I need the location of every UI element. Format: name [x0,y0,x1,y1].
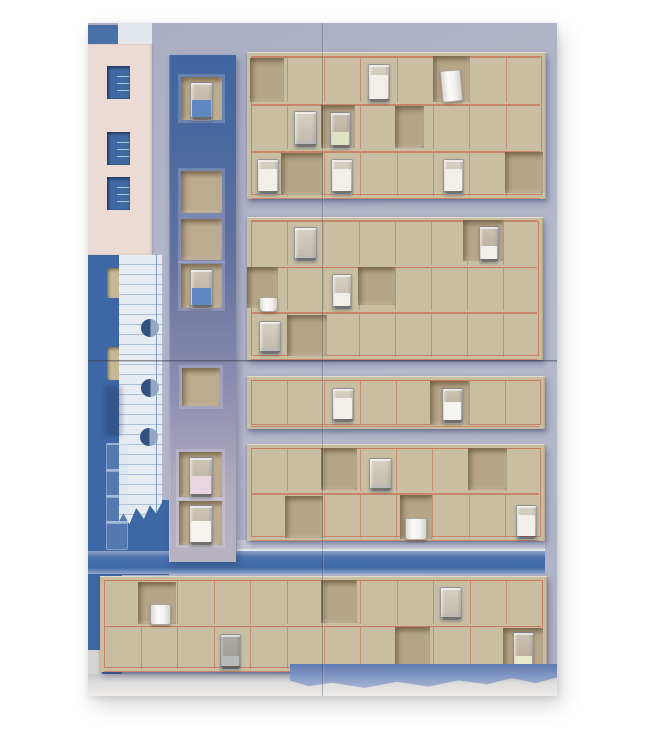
liquid [445,169,462,191]
column-niche [181,171,222,213]
grid-line [360,153,361,196]
grid-line [505,495,506,538]
grid-line [469,153,470,196]
grid-line [396,495,397,538]
cardboard-panel-3 [247,376,545,429]
glass-water [440,587,462,621]
glass-rim [444,160,463,162]
glass-base [191,305,212,308]
grid-line [250,581,251,624]
grid-line [431,221,432,265]
grid-line [324,153,325,196]
panel-niche [287,315,327,356]
glass-rim [190,458,212,460]
glass-base [517,536,536,539]
grid-line [323,221,324,265]
glass-halfmilk [479,226,499,263]
glass-base [443,420,462,423]
window-slat-line [117,201,128,202]
grid-line [287,627,288,669]
window-slat-line [117,149,128,150]
grid-line [432,495,433,538]
panel-niche [395,106,424,148]
top-left-blue-block [88,25,120,44]
glass-base [444,191,463,194]
grid-line [287,58,288,102]
grid-line [470,627,471,669]
grid-line [506,581,507,624]
grid-line [287,381,288,424]
grid-line [287,106,288,149]
liquid [334,293,350,306]
liquid [333,169,351,191]
glass-base [260,351,280,354]
grid-line [397,58,398,102]
grid-line [503,314,504,357]
grid-line [360,106,361,149]
glass-rim [295,112,316,114]
white-ceramic-cup [405,518,427,540]
liquid [332,132,349,145]
grid-line [433,627,434,669]
grid-line [287,581,288,624]
glass-pinkmilk [189,457,213,498]
window-slat-line [117,90,128,91]
grid-line [397,153,398,196]
glass-rim [443,389,462,391]
grid-line [141,627,142,669]
photo-background [0,0,647,740]
liquid [334,398,352,419]
window-slat-line [117,156,128,157]
glass-base [370,488,391,491]
grid-line [287,449,288,491]
grid-row [251,380,539,427]
glass-milk [331,159,353,195]
glass-base [190,542,212,545]
grid-line [469,495,470,538]
grid-line [395,268,396,310]
glass-rim [260,322,280,324]
liquid [191,521,211,542]
liquid [370,75,388,99]
grid-line [324,381,325,424]
white-ceramic-cup [440,69,464,103]
grid-line [506,106,507,149]
glass-water [369,458,392,492]
glass-base [295,144,316,147]
glass-whitemilk [442,388,463,424]
punch-hole [141,379,159,397]
pink-window-cutout [107,66,130,99]
window-slat-line [117,76,128,77]
liquid [444,402,461,420]
grid-line [287,221,288,265]
glass-rim [191,83,212,85]
glass-milk [443,159,464,195]
grid-line [359,314,360,357]
grid-line [359,221,360,265]
grid-line [360,449,361,491]
glass-base [258,191,278,194]
glass-water [259,321,281,355]
glass-rim [332,160,352,162]
grid-line [360,627,361,669]
glass-blue [190,269,213,309]
grid-line [360,58,361,102]
panel-niche [468,448,507,490]
window-slat-line [117,83,128,84]
grid-line [395,221,396,265]
glass-rim [331,113,350,115]
glass-milk [257,159,279,195]
grid-line [214,627,215,669]
glass-water [294,111,317,148]
glass-rim [514,633,533,635]
window-slat-line [117,187,128,188]
grid-line [177,581,178,624]
glass-rim [333,389,353,391]
glass-tint [221,635,240,669]
grid-line [323,268,324,310]
grid-line [250,627,251,669]
grid-line [324,58,325,102]
column-niche [181,219,222,260]
faint-glass-smudge [104,386,122,436]
panel-niche [395,627,430,668]
ghost-glass [106,443,128,472]
glass-rim [480,227,498,229]
glass-rim [295,228,316,230]
glass-base [332,191,352,194]
grid-line [396,449,397,491]
ghost-glass [106,495,128,524]
pink-window-cutout [107,132,130,165]
glass-base [441,617,461,620]
glass-base [191,117,212,120]
glass-milk [332,388,354,423]
glass-whitemilk [189,505,213,546]
grid-line [324,495,325,538]
glass-blue [190,82,213,121]
panel-niche [285,496,323,538]
glass-base [333,306,351,309]
grid-line [506,58,507,102]
glass-base [295,258,316,261]
glass-rim [441,588,461,590]
grid-line [432,449,433,491]
grid-line [469,381,470,424]
liquid [191,476,211,494]
panel-niche [321,448,357,490]
liquid [481,246,497,259]
grid-line [395,314,396,357]
white-ceramic-cup [259,297,278,312]
pink-window-cutout [107,177,130,210]
grid-line [431,268,432,310]
panel-niche [281,153,323,195]
glass-milk [516,505,537,540]
glass-base [190,494,212,497]
panel-niche [505,152,543,193]
grid-line [467,314,468,357]
grid-line [431,314,432,357]
glass-darkmilk [220,634,241,670]
cardboard-panel-4 [247,444,545,541]
grid-line [503,221,504,265]
column-niche [182,368,220,406]
grid-line [360,495,361,538]
grid-line [505,381,506,424]
grid-line [287,268,288,310]
glass-rim [191,270,212,272]
glass-rim [517,506,536,508]
glass-base [221,666,240,669]
glass-rim [369,65,389,67]
glass-base [331,145,350,148]
grid-line [397,581,398,624]
punch-hole [140,428,158,446]
grid-line [467,268,468,310]
glass-milk [368,64,390,103]
grid-line [470,581,471,624]
glass-rim [190,506,212,508]
glass-water [294,227,317,262]
glass-base [369,99,389,102]
liquid [259,169,277,191]
window-slat-line [117,142,128,143]
punch-hole [141,319,159,337]
glass-pale [330,112,351,149]
grid-line [433,153,434,196]
grid-line [433,581,434,624]
grid-line [177,627,178,669]
grid-line [469,106,470,149]
panel-seam-horizontal [88,360,557,362]
grid-line [503,268,504,310]
glass-base [480,259,498,262]
liquid [518,515,535,536]
cardboard-panel-1 [247,52,546,199]
panel-niche [358,267,395,305]
grid-line [360,381,361,424]
liquid [192,100,211,117]
top-paper-band [118,23,152,44]
grid-line [396,381,397,424]
grid-line [360,581,361,624]
artwork [88,23,557,696]
glass-rim [333,275,351,277]
grid-row [251,57,540,105]
grid-line [324,627,325,669]
liquid [192,288,211,305]
glass-halfmilk [332,274,352,310]
grid-line [214,581,215,624]
glass-rim [221,635,240,637]
panel-niche [250,58,284,102]
ghost-glass [106,469,128,498]
glass-base [333,419,353,422]
white-ceramic-cup [150,604,171,625]
window-slat-line [117,194,128,195]
grid-line [433,106,434,149]
ghost-glass [106,521,128,550]
glass-rim [370,459,391,461]
glass-rim [258,160,278,162]
panel-niche [321,580,357,623]
blue-band [88,551,545,574]
